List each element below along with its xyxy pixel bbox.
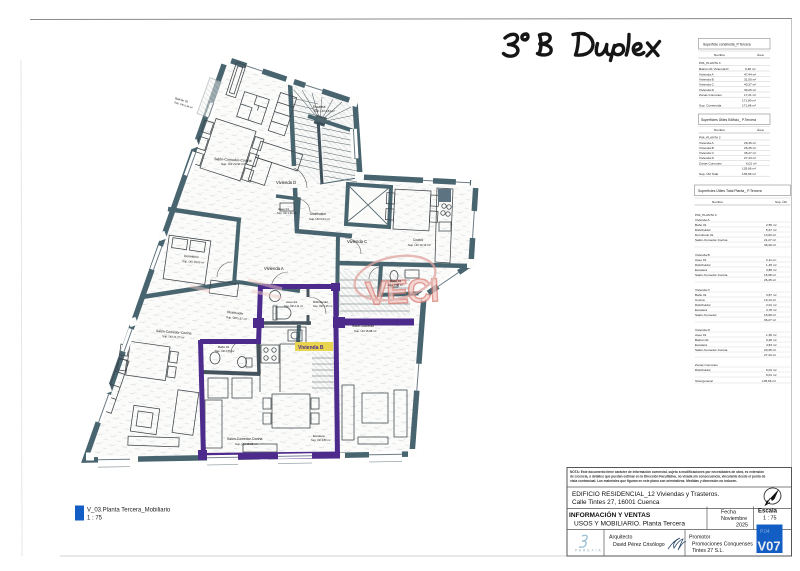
svg-text:de Licencia, o detalles que pu: de Licencia, o detalles que puedan estim… xyxy=(570,475,766,479)
svg-text:PAREXIA: PAREXIA xyxy=(575,549,603,553)
svg-text:Vivienda C: Vivienda C xyxy=(347,239,367,244)
svg-text:Superficie construida_P.Tercer: Superficie construida_P.Tercera xyxy=(703,43,751,47)
svg-text:Distribuidor: Distribuidor xyxy=(313,300,328,304)
svg-text:36,27 m²: 36,27 m² xyxy=(764,318,776,322)
svg-text:47,44 m²: 47,44 m² xyxy=(744,72,756,76)
svg-text:15,98 m²: 15,98 m² xyxy=(764,313,776,317)
svg-text:31,00 m²: 31,00 m² xyxy=(744,78,756,82)
svg-text:V07: V07 xyxy=(758,539,781,554)
svg-text:USOS Y MOBILIARIO. Planta Terc: USOS Y MOBILIARIO. Planta Tercera xyxy=(574,521,685,528)
svg-text:Sup. Útil 15,98 m²: Sup. Útil 15,98 m² xyxy=(235,441,257,446)
svg-text:P04_PLANTA 3: P04_PLANTA 3 xyxy=(699,61,721,65)
svg-text:Vivienda D: Vivienda D xyxy=(699,88,715,92)
svg-text:Tintes 27 S.L.: Tintes 27 S.L. xyxy=(692,548,724,554)
svg-text:1,36 m²: 1,36 m² xyxy=(766,333,777,337)
svg-text:Escalera: Escalera xyxy=(695,308,707,312)
svg-text:Calle Tintes 27, 16001 Cuenca: Calle Tintes 27, 16001 Cuenca xyxy=(572,499,660,506)
svg-text:Escalera: Escalera xyxy=(695,268,707,272)
svg-text:17,21 m²: 17,21 m² xyxy=(744,93,756,97)
svg-text:4,84 m²: 4,84 m² xyxy=(766,343,777,347)
svg-text:6,01 m²: 6,01 m² xyxy=(766,368,777,372)
svg-text:13,13 m²: 13,13 m² xyxy=(764,298,776,302)
svg-text:Sup. Útil: Sup. Útil xyxy=(775,200,787,204)
svg-text:Baño 01: Baño 01 xyxy=(390,279,402,283)
svg-text:Promociones Conquenses: Promociones Conquenses xyxy=(692,542,753,548)
svg-text:2,55 m²: 2,55 m² xyxy=(766,223,777,227)
svg-text:Noviembre: Noviembre xyxy=(721,516,747,522)
svg-text:Vivienda D: Vivienda D xyxy=(699,156,715,160)
svg-text:Sup. Útil Total: Sup. Útil Total xyxy=(699,172,718,176)
svg-text:Aseo 01: Aseo 01 xyxy=(695,333,707,337)
svg-text:Escalera: Escalera xyxy=(313,434,325,438)
svg-text:29,46 m²: 29,46 m² xyxy=(744,141,756,145)
svg-text:Distribuidor: Distribuidor xyxy=(695,303,711,307)
svg-text:1 : 75: 1 : 75 xyxy=(87,516,103,522)
svg-text:Promotor: Promotor xyxy=(689,535,711,541)
svg-text:6,01 m²: 6,01 m² xyxy=(746,161,757,165)
svg-text:Vivienda D: Vivienda D xyxy=(695,328,711,332)
svg-text:Vivienda A: Vivienda A xyxy=(264,266,284,271)
svg-text:P04_PLANTA 3: P04_PLANTA 3 xyxy=(695,213,717,217)
svg-text:Vivienda C: Vivienda C xyxy=(699,151,715,155)
svg-text:26,45 m²: 26,45 m² xyxy=(764,278,776,282)
svg-text:135,66 m²: 135,66 m² xyxy=(742,167,756,171)
svg-text:Sup. Construida: Sup. Construida xyxy=(699,104,721,108)
svg-text:15,98 m²: 15,98 m² xyxy=(764,273,776,277)
svg-text:Distribuidor: Distribuidor xyxy=(310,212,327,216)
svg-text:VECI: VECI xyxy=(364,271,439,312)
svg-text:Vivienda A: Vivienda A xyxy=(699,141,714,145)
svg-text:Zonas Comunes: Zonas Comunes xyxy=(699,161,722,165)
svg-text:Distribuidor: Distribuidor xyxy=(695,368,711,372)
svg-text:Salón-Comedor-Cocina: Salón-Comedor-Cocina xyxy=(695,238,728,242)
svg-text:Vivienda C: Vivienda C xyxy=(699,83,715,87)
svg-text:21,27 m²: 21,27 m² xyxy=(764,238,776,242)
svg-text:Superficies Útiles Edificio_ P: Superficies Útiles Edificio_ P.Tercera xyxy=(701,117,756,122)
svg-text:Cocina: Cocina xyxy=(695,298,705,302)
svg-text:171,86 m²: 171,86 m² xyxy=(742,104,756,108)
svg-text:Baño 01: Baño 01 xyxy=(695,223,707,227)
svg-text:Sup. Útil 22,91 m²: Sup. Útil 22,91 m² xyxy=(221,161,245,166)
svg-text:EDIFICIO RESIDENCIAL_12 Vivien: EDIFICIO RESIDENCIAL_12 Viviendas y Tras… xyxy=(572,491,719,498)
svg-text:Sup. Útil 6,01 m²: Sup. Útil 6,01 m² xyxy=(309,216,330,221)
svg-text:39,26 m²: 39,26 m² xyxy=(744,88,756,92)
svg-text:Salón-Comedor-Cocina: Salón-Comedor-Cocina xyxy=(227,437,263,441)
svg-text:Total general: Total general xyxy=(695,379,713,383)
svg-text:2,11 m²: 2,11 m² xyxy=(766,258,776,262)
svg-text:Baño 01: Baño 01 xyxy=(218,345,230,349)
svg-text:Salón-Comedor-Cocina: Salón-Comedor-Cocina xyxy=(695,348,728,352)
svg-text:Escala: Escala xyxy=(758,509,778,515)
svg-text:5,67 m²: 5,67 m² xyxy=(766,228,777,232)
svg-text:Vivienda D: Vivienda D xyxy=(276,180,296,185)
svg-text:Vivienda B: Vivienda B xyxy=(695,253,710,257)
svg-text:Aseo 01: Aseo 01 xyxy=(286,300,297,304)
svg-text:Zonas Comunes: Zonas Comunes xyxy=(695,363,718,367)
svg-text:Nombre: Nombre xyxy=(714,53,725,57)
svg-text:Vivienda B: Vivienda B xyxy=(699,78,714,82)
svg-text:36,49 m²: 36,49 m² xyxy=(764,243,776,247)
svg-text:Vivienda B: Vivienda B xyxy=(699,146,714,150)
svg-text:P04_PLANTA 3: P04_PLANTA 3 xyxy=(699,136,721,140)
svg-text:0,48 m²: 0,48 m² xyxy=(766,338,777,342)
svg-text:Aseo 01: Aseo 01 xyxy=(278,207,289,211)
svg-text:135,66 m²: 135,66 m² xyxy=(742,172,756,176)
svg-text:Balcón 01 Vivienda D: Balcón 01 Vivienda D xyxy=(699,67,729,71)
svg-text:Escalera: Escalera xyxy=(695,343,707,347)
svg-text:Sup. 3,87 m²: Sup. 3,87 m² xyxy=(388,283,403,287)
svg-text:Vivienda B: Vivienda B xyxy=(298,345,324,351)
svg-text:Sup. Útil 15,98 m²: Sup. Útil 15,98 m² xyxy=(354,328,376,333)
svg-text:27,43 m²: 27,43 m² xyxy=(764,353,776,357)
svg-text:3,78 m²: 3,78 m² xyxy=(766,308,777,312)
svg-text:Dormitorio 01: Dormitorio 01 xyxy=(695,233,714,237)
svg-text:40,37 m²: 40,37 m² xyxy=(744,83,756,87)
svg-text:Vivienda A: Vivienda A xyxy=(695,218,710,222)
svg-text:1,45 m²: 1,45 m² xyxy=(766,263,777,267)
svg-text:27,43 m²: 27,43 m² xyxy=(744,156,756,160)
svg-text:Salón-Comedor: Salón-Comedor xyxy=(695,313,717,317)
svg-text:2025: 2025 xyxy=(736,523,748,529)
svg-text:135,66 m²: 135,66 m² xyxy=(762,379,776,383)
svg-text:V_03.Planta Tercera_Mobiliario: V_03.Planta Tercera_Mobiliario xyxy=(87,508,171,514)
svg-text:Sup. Útil 13,13 m²: Sup. Útil 13,13 m² xyxy=(408,242,430,247)
svg-text:Fecha: Fecha xyxy=(721,510,736,516)
svg-text:Área: Área xyxy=(757,53,764,57)
svg-text:David Pérez Crisólogo: David Pérez Crisólogo xyxy=(613,542,665,548)
svg-text:3,89 m²: 3,89 m² xyxy=(766,268,777,272)
svg-text:NOTA: Este documento tiene car: NOTA: Este documento tiene carácter de i… xyxy=(570,470,764,474)
svg-text:Área: Área xyxy=(757,128,764,132)
svg-text:171,80 m²: 171,80 m² xyxy=(742,99,756,103)
svg-text:Aseo 01: Aseo 01 xyxy=(695,258,707,262)
svg-text:Salón-Comedor-Cocina: Salón-Comedor-Cocina xyxy=(695,273,728,277)
svg-text:Distribuidor: Distribuidor xyxy=(695,263,711,267)
svg-text:2,01 m²: 2,01 m² xyxy=(766,303,777,307)
svg-text:36,27 m²: 36,27 m² xyxy=(744,151,756,155)
svg-text:Salón-Comedor: Salón-Comedor xyxy=(352,324,375,328)
svg-text:Nombre: Nombre xyxy=(714,128,725,132)
svg-text:Vivienda A: Vivienda A xyxy=(699,72,714,76)
svg-text:6,01 m²: 6,01 m² xyxy=(766,373,777,377)
svg-text:20,36 m²: 20,36 m² xyxy=(764,348,776,352)
svg-text:Zonas Comunes: Zonas Comunes xyxy=(699,93,722,97)
svg-text:Cocina: Cocina xyxy=(413,238,423,242)
svg-text:0,48 m²: 0,48 m² xyxy=(745,67,756,71)
svg-text:Balcón 01: Balcón 01 xyxy=(695,338,709,342)
svg-text:Nombre: Nombre xyxy=(712,200,723,204)
svg-text:INFORMACIÓN Y VENTAS: INFORMACIÓN Y VENTAS xyxy=(569,510,651,519)
svg-text:26,45 m²: 26,45 m² xyxy=(744,146,756,150)
svg-text:13,00 m²: 13,00 m² xyxy=(764,233,776,237)
svg-text:Baño 01: Baño 01 xyxy=(695,293,707,297)
svg-text:3,87 m²: 3,87 m² xyxy=(766,293,777,297)
svg-text:Sup. Útil 4,84 m²: Sup. Útil 4,84 m² xyxy=(314,108,335,113)
svg-text:Vivienda C: Vivienda C xyxy=(695,288,711,292)
svg-text:vista contractual. Los materia: vista contractual. Los materiales que fi… xyxy=(570,479,737,483)
svg-text:Superficies Útiles Total Plant: Superficies Útiles Total Planta_ P.Terce… xyxy=(698,189,762,193)
svg-text:Arquitecto: Arquitecto xyxy=(609,535,632,541)
svg-text:P.04: P.04 xyxy=(760,529,770,535)
svg-text:1 : 75: 1 : 75 xyxy=(763,516,777,522)
svg-text:Distribuidor: Distribuidor xyxy=(695,228,711,232)
